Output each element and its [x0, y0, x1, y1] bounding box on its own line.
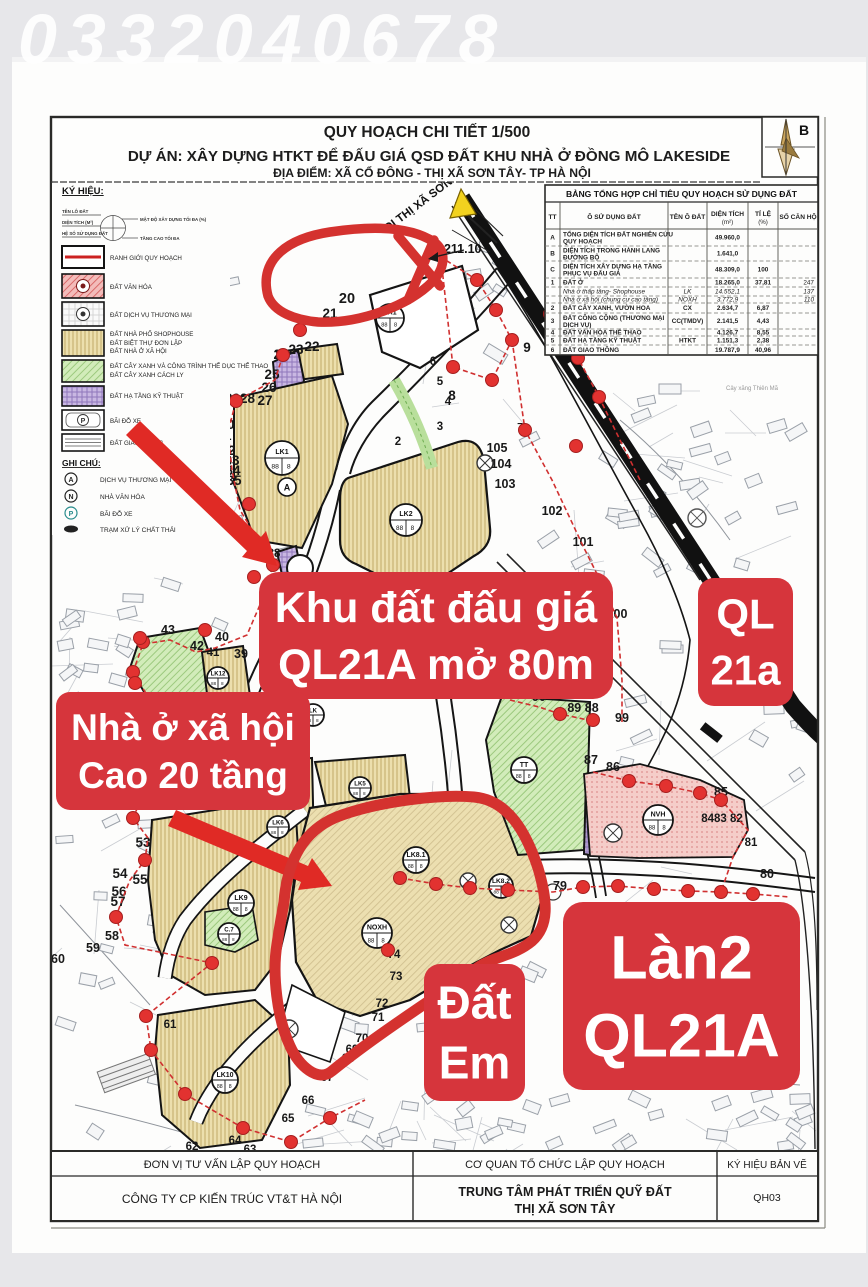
svg-text:QL21A: QL21A	[583, 1001, 780, 1069]
svg-text:C.7: C.7	[224, 927, 234, 933]
svg-text:MẬT ĐỘ XÂY DỰNG TỐI ĐA (%): MẬT ĐỘ XÂY DỰNG TỐI ĐA (%)	[140, 217, 207, 222]
svg-text:4: 4	[445, 396, 452, 408]
svg-text:LK9: LK9	[234, 895, 247, 902]
svg-text:CC(TMDV): CC(TMDV)	[672, 318, 704, 325]
svg-text:39: 39	[234, 647, 248, 661]
svg-text:1: 1	[551, 280, 555, 287]
svg-text:88: 88	[271, 830, 276, 835]
svg-text:86: 86	[606, 760, 620, 774]
svg-text:DỊCH VỤ THƯƠNG MẠI: DỊCH VỤ THƯƠNG MẠI	[100, 477, 172, 484]
svg-text:2: 2	[551, 305, 555, 312]
svg-text:8: 8	[420, 864, 423, 870]
svg-text:6: 6	[551, 347, 555, 354]
svg-text:2.634,7: 2.634,7	[717, 305, 739, 312]
svg-text:DIỆN TÍCH (M²): DIỆN TÍCH (M²)	[62, 220, 94, 225]
svg-text:NVH: NVH	[651, 811, 666, 818]
svg-text:2.141,5: 2.141,5	[717, 318, 739, 325]
svg-text:88: 88	[494, 889, 500, 895]
svg-text:3: 3	[437, 421, 443, 433]
svg-text:59: 59	[86, 941, 100, 955]
svg-text:TRUNG TÂM PHÁT TRIỂN QUỸ ĐẤT: TRUNG TÂM PHÁT TRIỂN QUỸ ĐẤT	[458, 1184, 672, 1199]
svg-text:22: 22	[304, 339, 319, 354]
svg-text:ĐẤT NHÀ Ở XÃ HỘI: ĐẤT NHÀ Ở XÃ HỘI	[110, 348, 167, 355]
svg-text:(%): (%)	[758, 219, 768, 226]
svg-text:53: 53	[135, 835, 151, 850]
svg-text:ĐẤT CÂY XANH CÁCH LY: ĐẤT CÂY XANH CÁCH LY	[110, 372, 184, 379]
svg-text:Đất: Đất	[437, 977, 511, 1029]
svg-text:54: 54	[112, 866, 128, 881]
svg-text:101: 101	[573, 535, 594, 549]
svg-text:8: 8	[287, 464, 291, 471]
svg-text:88: 88	[649, 825, 656, 831]
svg-text:105: 105	[487, 441, 508, 455]
svg-text:LK1: LK1	[275, 449, 288, 456]
svg-text:CƠ QUAN TỔ CHỨC LẬP QUY HOẠCH: CƠ QUAN TỔ CHỨC LẬP QUY HOẠCH	[465, 1158, 665, 1171]
svg-text:B: B	[799, 122, 809, 138]
svg-text:LK10: LK10	[216, 1072, 233, 1079]
svg-text:Nhà ở xã hội: Nhà ở xã hội	[71, 707, 295, 748]
svg-text:64: 64	[229, 1135, 242, 1147]
svg-text:14.552,1: 14.552,1	[715, 289, 740, 296]
svg-text:LK: LK	[309, 708, 318, 714]
svg-text:TÊN LÔ ĐẤT: TÊN LÔ ĐẤT	[62, 209, 89, 214]
svg-text:ĐỊA ĐIỂM: XÃ CỔ ĐÔNG - THỊ XÃ: ĐỊA ĐIỂM: XÃ CỔ ĐÔNG - THỊ XÃ SƠN TÂY- T…	[273, 165, 591, 180]
svg-text:57: 57	[110, 894, 125, 909]
svg-text:HTKT: HTKT	[679, 338, 696, 345]
svg-text:DIỆN TÍCH: DIỆN TÍCH	[711, 209, 744, 218]
svg-text:CX: CX	[683, 305, 693, 312]
svg-text:102: 102	[542, 504, 563, 518]
svg-text:ĐẤT HẠ TẦNG KỸ THUẬT: ĐẤT HẠ TẦNG KỸ THUẬT	[110, 393, 184, 400]
svg-text:88: 88	[353, 791, 358, 796]
svg-text:LK8.1: LK8.1	[406, 852, 425, 859]
svg-text:0332040678: 0332040678	[18, 0, 507, 78]
svg-text:58: 58	[105, 929, 119, 943]
svg-text:KÝ HIỆU:: KÝ HIỆU:	[62, 185, 104, 197]
svg-text:88: 88	[368, 938, 375, 944]
svg-text:BẢNG TỔNG HỢP CHỈ TIÊU QUY HOẠ: BẢNG TỔNG HỢP CHỈ TIÊU QUY HOẠCH SỬ DỤNG…	[566, 188, 798, 199]
svg-text:61: 61	[164, 1019, 177, 1031]
svg-text:18.265,0: 18.265,0	[715, 280, 740, 287]
svg-text:N: N	[68, 494, 73, 501]
svg-text:88: 88	[516, 774, 522, 780]
svg-text:6,87: 6,87	[757, 305, 770, 312]
svg-text:8: 8	[528, 774, 531, 780]
svg-text:4,43: 4,43	[757, 318, 770, 325]
svg-text:49.960,0: 49.960,0	[715, 235, 740, 242]
svg-text:ĐẤT DỊCH VỤ THƯƠNG MẠI: ĐẤT DỊCH VỤ THƯƠNG MẠI	[110, 312, 192, 319]
svg-text:NOXH: NOXH	[367, 924, 387, 931]
svg-text:Nhà ở thấp tầng- Shophouse: Nhà ở thấp tầng- Shophouse	[563, 287, 645, 296]
svg-text:P: P	[81, 418, 86, 425]
svg-text:87: 87	[584, 753, 598, 767]
svg-text:ĐẤT CÂY XANH VÀ CÔNG TRÌNH THỂ: ĐẤT CÂY XANH VÀ CÔNG TRÌNH THỂ DỤC THỂ T…	[110, 363, 268, 370]
svg-text:8: 8	[245, 907, 248, 913]
svg-text:ĐƠN VỊ TƯ VẤN LẬP QUY HOẠCH: ĐƠN VỊ TƯ VẤN LẬP QUY HOẠCH	[144, 1158, 321, 1171]
svg-text:DỰ ÁN: XÂY DỰNG HTKT ĐỂ ĐẤU GI: DỰ ÁN: XÂY DỰNG HTKT ĐỂ ĐẤU GIÁ QSD ĐẤT …	[128, 147, 730, 165]
svg-text:43: 43	[161, 623, 175, 637]
svg-text:TT: TT	[520, 762, 529, 769]
svg-text:C: C	[550, 267, 555, 274]
svg-text:20: 20	[339, 291, 355, 307]
svg-text:QH03: QH03	[753, 1192, 781, 1204]
svg-text:TẦNG CAO TỐI ĐA: TẦNG CAO TỐI ĐA	[140, 236, 180, 241]
svg-text:GHI CHÚ:: GHI CHÚ:	[62, 457, 101, 468]
svg-text:88: 88	[233, 907, 239, 913]
svg-text:89 88: 89 88	[567, 701, 598, 715]
svg-text:P: P	[69, 511, 74, 518]
svg-text:CÔNG TY CP KIẾN TRÚC VT&T HÀ N: CÔNG TY CP KIẾN TRÚC VT&T HÀ NỘI	[122, 1191, 342, 1206]
svg-text:137: 137	[803, 289, 814, 296]
svg-text:A: A	[284, 483, 291, 493]
svg-text:40,96: 40,96	[755, 347, 771, 354]
svg-text:Cây xăng Thiên Mã: Cây xăng Thiên Mã	[726, 386, 779, 392]
svg-text:LK2: LK2	[399, 511, 412, 518]
svg-text:THỊ XÃ SƠN TÂY: THỊ XÃ SƠN TÂY	[515, 1201, 617, 1216]
svg-text:104: 104	[491, 457, 512, 471]
svg-text:NHÀ VĂN HÓA: NHÀ VĂN HÓA	[100, 492, 145, 501]
svg-text:88: 88	[217, 1084, 223, 1090]
svg-text:247: 247	[803, 280, 814, 287]
svg-text:ĐƯỜNG BỘ: ĐƯỜNG BỘ	[563, 253, 599, 262]
svg-text:KÝ HIỆU BẢN VẼ: KÝ HIỆU BẢN VẼ	[727, 1158, 807, 1171]
svg-text:81: 81	[745, 837, 758, 849]
svg-text:21a: 21a	[710, 647, 781, 694]
svg-text:66: 66	[302, 1095, 315, 1107]
svg-text:LK6: LK6	[272, 820, 284, 826]
svg-text:2: 2	[395, 436, 401, 448]
svg-text:QL: QL	[716, 591, 774, 638]
svg-text:103: 103	[495, 477, 516, 491]
svg-text:ĐẤT VĂN HÓA: ĐẤT VĂN HÓA	[110, 284, 153, 291]
svg-text:Em: Em	[439, 1037, 511, 1089]
svg-text:DIỆN TÍCH TRONG HÀNH LANG: DIỆN TÍCH TRONG HÀNH LANG	[563, 245, 660, 254]
svg-text:8: 8	[411, 525, 415, 532]
svg-text:19.787,9: 19.787,9	[715, 347, 740, 354]
svg-text:RANH GIỚI QUY HOẠCH: RANH GIỚI QUY HOẠCH	[110, 255, 182, 262]
svg-text:QUY HOẠCH CHI TIẾT 1/500: QUY HOẠCH CHI TIẾT 1/500	[324, 124, 530, 141]
svg-text:40: 40	[215, 630, 229, 644]
svg-text:6: 6	[430, 356, 436, 368]
svg-text:88: 88	[211, 681, 216, 686]
svg-text:DỊCH VỤ): DỊCH VỤ)	[563, 322, 591, 329]
svg-text:5: 5	[551, 338, 555, 345]
svg-text:LK12: LK12	[211, 671, 226, 677]
svg-text:A: A	[68, 477, 73, 484]
svg-text:QUY HOẠCH: QUY HOẠCH	[563, 239, 602, 246]
svg-text:2,38: 2,38	[757, 338, 770, 345]
svg-text:37,81: 37,81	[755, 280, 771, 287]
svg-text:Cao 20 tầng: Cao 20 tầng	[78, 755, 288, 796]
svg-text:HỆ SỐ SỬ DỤNG ĐẤT: HỆ SỐ SỬ DỤNG ĐẤT	[62, 231, 108, 236]
svg-text:1.641,0: 1.641,0	[717, 251, 739, 258]
svg-text:B: B	[550, 251, 555, 258]
svg-text:8: 8	[229, 1084, 232, 1090]
svg-text:88: 88	[381, 323, 387, 329]
svg-text:BÃI ĐỖ XE: BÃI ĐỖ XE	[110, 418, 141, 425]
svg-text:65: 65	[282, 1113, 295, 1125]
svg-text:LK: LK	[684, 289, 693, 296]
svg-text:NOXH: NOXH	[678, 297, 697, 304]
svg-text:88: 88	[222, 937, 227, 942]
svg-text:72: 72	[376, 998, 389, 1010]
svg-text:48.309,0: 48.309,0	[715, 267, 740, 274]
svg-text:8483 82: 8483 82	[701, 813, 743, 825]
svg-text:QL21A mở 80m: QL21A mở 80m	[278, 641, 594, 689]
svg-text:3: 3	[551, 318, 555, 325]
svg-text:LK5: LK5	[354, 781, 366, 787]
svg-text:ĐẤT NHÀ PHỐ SHOPHOUSE: ĐẤT NHÀ PHỐ SHOPHOUSE	[110, 331, 193, 338]
svg-text:A: A	[550, 235, 555, 242]
svg-text:23: 23	[288, 342, 304, 357]
svg-text:9: 9	[523, 340, 531, 355]
svg-text:ĐẤT BIỆT THỰ ĐƠN LẬP: ĐẤT BIỆT THỰ ĐƠN LẬP	[110, 339, 182, 347]
svg-text:5: 5	[437, 376, 444, 388]
svg-text:73: 73	[390, 971, 403, 983]
svg-text:100: 100	[758, 267, 769, 274]
svg-text:1.151,3: 1.151,3	[717, 338, 739, 345]
svg-text:Làn2: Làn2	[610, 923, 752, 991]
svg-text:Khu đất đấu giá: Khu đất đấu giá	[275, 584, 599, 632]
svg-text:88: 88	[408, 864, 414, 870]
svg-text:71: 71	[372, 1012, 385, 1024]
svg-text:TT: TT	[548, 214, 556, 221]
svg-text:TỈ LỆ: TỈ LỆ	[755, 209, 772, 218]
svg-text:BÃI ĐỖ XE: BÃI ĐỖ XE	[100, 509, 133, 518]
svg-text:88: 88	[396, 525, 404, 532]
svg-text:80: 80	[760, 867, 774, 881]
svg-text:(m²): (m²)	[722, 219, 733, 226]
svg-text:Nhà ở xã hội (chung cư cao tần: Nhà ở xã hội (chung cư cao tầng)	[563, 295, 658, 304]
svg-text:27: 27	[257, 393, 272, 408]
svg-text:60: 60	[51, 952, 65, 966]
svg-text:8: 8	[394, 323, 397, 329]
svg-text:88: 88	[271, 464, 279, 471]
